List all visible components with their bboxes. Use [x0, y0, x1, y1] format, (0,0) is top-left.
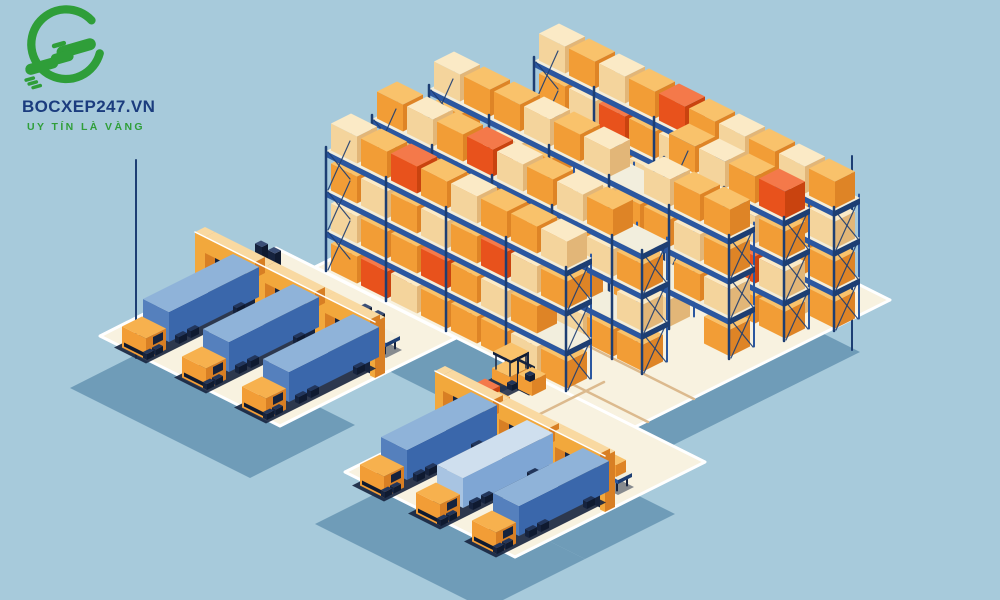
- logo-handshake-icon: [18, 2, 110, 90]
- brand-name: BOCXEP247.VN: [22, 97, 188, 117]
- logo: BOCXEP247.VN UY TÍN LÀ VÀNG: [18, 2, 188, 133]
- warehouse-illustration: BOCXEP247.VN UY TÍN LÀ VÀNG: [0, 0, 1000, 600]
- brand-tagline: UY TÍN LÀ VÀNG: [27, 121, 188, 133]
